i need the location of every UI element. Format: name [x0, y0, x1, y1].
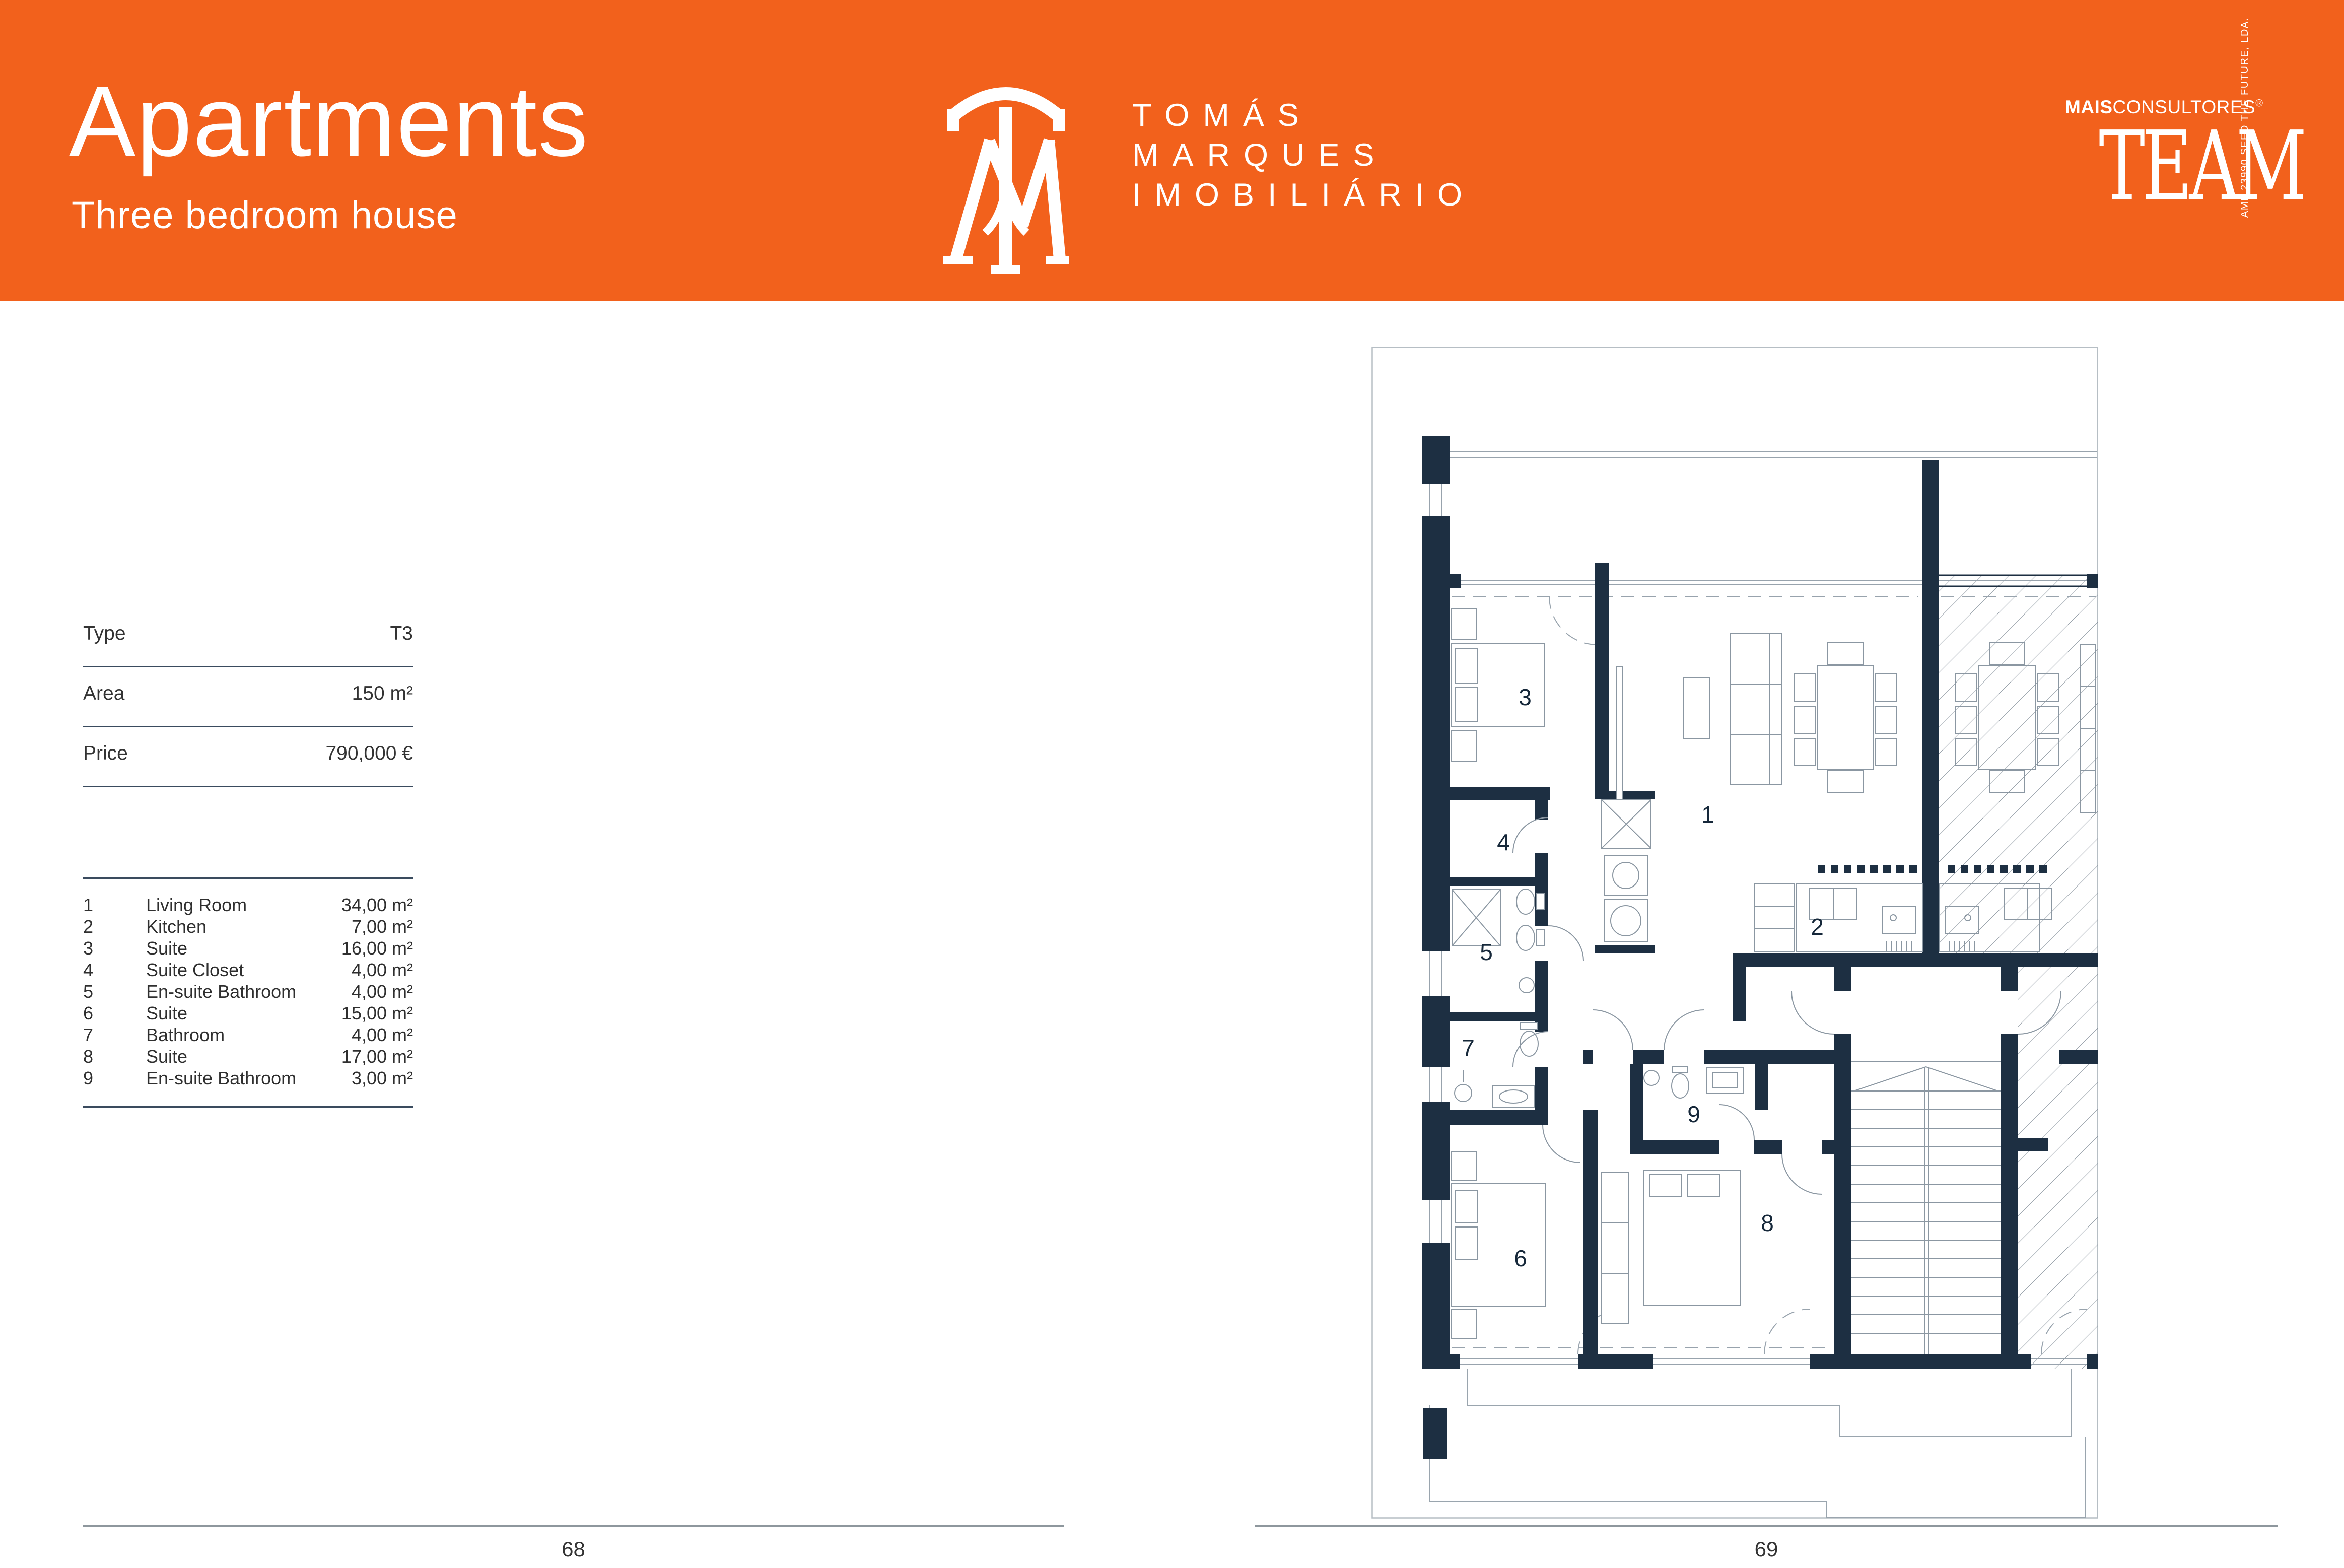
- divider: [83, 666, 413, 667]
- tm-monogram-icon: [943, 56, 1069, 278]
- list-item: 6Suite15,00 m²: [83, 1004, 413, 1022]
- page-subtitle: Three bedroom house: [72, 196, 458, 235]
- room-label-6: 6: [1514, 1245, 1527, 1271]
- team-logo: MAISCONSULTORES® TEAM: [2065, 97, 2234, 203]
- brochure-page: Apartments Three bedroom house TOMÁS: [0, 0, 2344, 1568]
- brand-name: TOMÁS MARQUES IMOBILIÁRIO: [1132, 100, 1476, 211]
- list-item: 7Bathroom4,00 m²: [83, 1026, 413, 1044]
- room-label-2: 2: [1811, 914, 1824, 940]
- room-name: Kitchen: [146, 918, 352, 936]
- floor-plan: 1 2 3 4 5 6 7 8 9: [1371, 347, 2098, 1519]
- room-label-5: 5: [1480, 939, 1493, 965]
- page-number-right: 69: [1255, 1537, 2278, 1561]
- room-area: 16,00 m²: [341, 939, 413, 958]
- list-item: 4Suite Closet4,00 m²: [83, 961, 413, 979]
- footer-rule-left: [83, 1525, 1064, 1527]
- room-area: 15,00 m²: [341, 1004, 413, 1022]
- room-label-3: 3: [1519, 684, 1532, 710]
- room-area: 34,00 m²: [341, 896, 413, 914]
- room-num: 7: [83, 1026, 146, 1044]
- room-label-8: 8: [1761, 1210, 1774, 1236]
- divider: [83, 786, 413, 787]
- room-area: 7,00 m²: [352, 918, 413, 936]
- list-item: 1Living Room34,00 m²: [83, 896, 413, 914]
- room-label-9: 9: [1687, 1101, 1700, 1127]
- room-num: 9: [83, 1069, 146, 1087]
- divider: [83, 1106, 413, 1108]
- room-name: Suite Closet: [146, 961, 352, 979]
- room-list: 1Living Room34,00 m² 2Kitchen7,00 m² 3Su…: [83, 877, 413, 1108]
- spec-row-area: Area 150 m²: [83, 683, 413, 705]
- spec-label: Type: [83, 623, 126, 645]
- room-num: 8: [83, 1048, 146, 1066]
- spec-table: Type T3 Area 150 m² Price 790,000 €: [83, 623, 413, 787]
- header-banner: Apartments Three bedroom house TOMÁS: [0, 0, 2344, 301]
- spec-label: Price: [83, 742, 128, 765]
- room-num: 3: [83, 939, 146, 958]
- list-item: 9En-suite Bathroom3,00 m²: [83, 1069, 413, 1087]
- room-list-rows: 1Living Room34,00 m² 2Kitchen7,00 m² 3Su…: [83, 879, 413, 1106]
- room-area: 3,00 m²: [352, 1069, 413, 1087]
- room-name: Suite: [146, 1004, 341, 1022]
- room-num: 1: [83, 896, 146, 914]
- room-name: Suite: [146, 939, 341, 958]
- registered-icon: ®: [2255, 98, 2263, 109]
- room-label-1: 1: [1701, 801, 1714, 828]
- list-item: 5En-suite Bathroom4,00 m²: [83, 983, 413, 1001]
- team-wordmark: TEAM: [2099, 121, 2234, 212]
- room-area: 4,00 m²: [352, 983, 413, 1001]
- room-name: Suite: [146, 1048, 341, 1066]
- brand-line-3: IMOBILIÁRIO: [1132, 179, 1476, 211]
- spec-value: 790,000 €: [325, 742, 413, 765]
- room-num: 4: [83, 961, 146, 979]
- spec-label: Area: [83, 683, 124, 705]
- footer-rule-right: [1255, 1525, 2278, 1527]
- room-area: 4,00 m²: [352, 961, 413, 979]
- room-name: Living Room: [146, 896, 341, 914]
- room-label-7: 7: [1462, 1035, 1475, 1061]
- spec-row-type: Type T3: [83, 623, 413, 645]
- room-label-4: 4: [1497, 829, 1510, 855]
- room-name: Bathroom: [146, 1026, 352, 1044]
- spec-value: T3: [390, 623, 413, 645]
- brand-line-1: TOMÁS: [1132, 100, 1476, 131]
- spec-value: 150 m²: [352, 683, 413, 705]
- page-number-left: 68: [83, 1537, 1064, 1561]
- spec-row-price: Price 790,000 €: [83, 742, 413, 765]
- divider: [83, 726, 413, 727]
- list-item: 8Suite17,00 m²: [83, 1048, 413, 1066]
- room-num: 2: [83, 918, 146, 936]
- room-num: 6: [83, 1004, 146, 1022]
- team-tagline: AMI: 23990 SEED THE FUTURE, LDA.: [2239, 17, 2251, 218]
- room-area: 17,00 m²: [341, 1048, 413, 1066]
- page-title: Apartments: [69, 72, 589, 171]
- room-name: En-suite Bathroom: [146, 983, 352, 1001]
- room-num: 5: [83, 983, 146, 1001]
- list-item: 2Kitchen7,00 m²: [83, 918, 413, 936]
- room-name: En-suite Bathroom: [146, 1069, 352, 1087]
- room-area: 4,00 m²: [352, 1026, 413, 1044]
- brand-line-2: MARQUES: [1132, 140, 1476, 171]
- list-item: 3Suite16,00 m²: [83, 939, 413, 958]
